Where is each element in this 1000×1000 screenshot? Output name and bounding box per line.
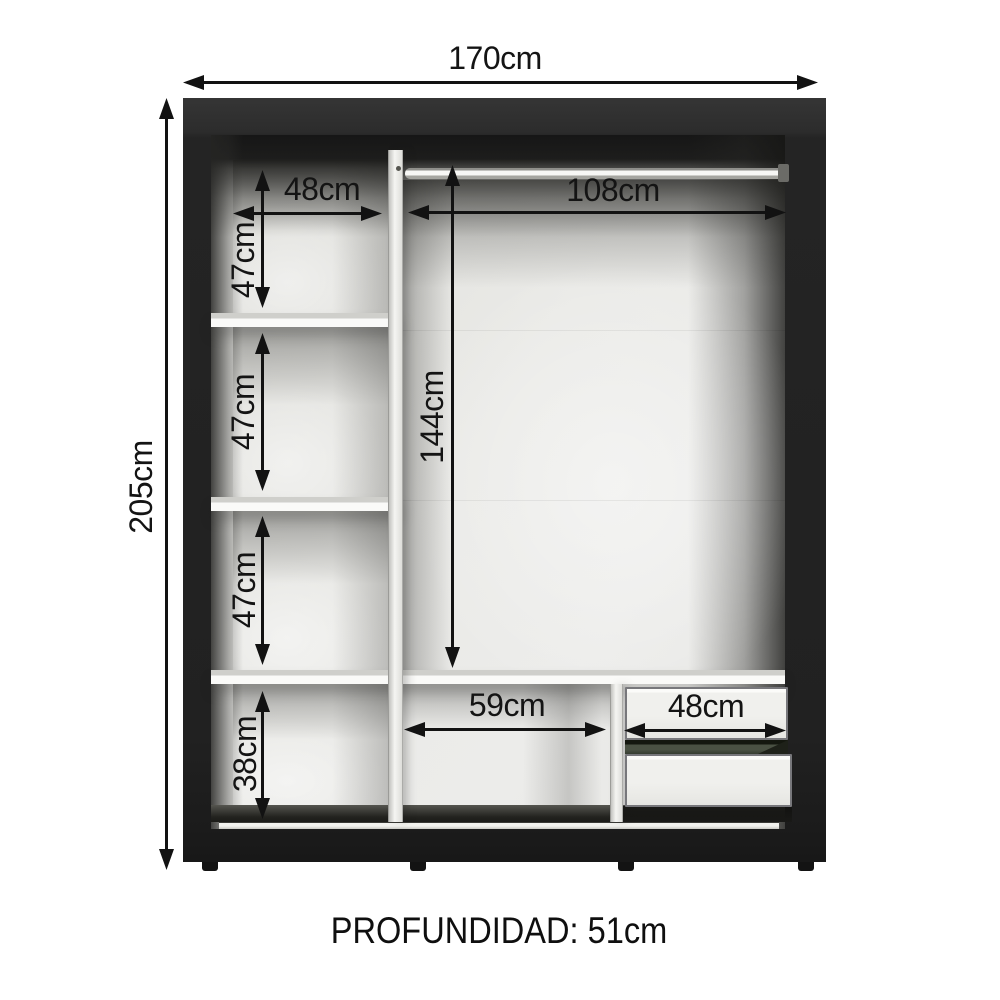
dim-overall-height-arrow xyxy=(159,98,174,870)
dim-hanging-height-label: 144cm xyxy=(416,370,448,464)
dim-overall-width-arrow xyxy=(183,75,818,90)
dim-upper-shelf-width-label: 48cm xyxy=(284,173,360,205)
plinth-foot xyxy=(410,862,426,871)
plinth-foot xyxy=(618,862,634,871)
shelf-2 xyxy=(211,497,403,511)
dim-shelf3-height-label: 47cm xyxy=(228,552,260,628)
dim-drawer-width-arrow xyxy=(624,723,786,738)
wardrobe-dimension-diagram: 170cm 205cm 48cm 108cm 47cm 47cm 47cm 38… xyxy=(0,0,1000,1000)
dim-shelf2-height-label: 47cm xyxy=(227,374,259,450)
rod-bracket xyxy=(778,164,789,182)
bottom-divider xyxy=(610,684,623,822)
rod-screw xyxy=(396,166,401,171)
drawer-shadow xyxy=(623,806,792,822)
plinth-foot xyxy=(202,862,218,871)
dim-bottom-open-width-arrow xyxy=(404,722,606,737)
hanging-section-shade xyxy=(403,180,785,670)
dim-overall-width-label: 170cm xyxy=(448,42,542,74)
dim-overall-height-label: 205cm xyxy=(125,440,157,534)
plinth-foot xyxy=(798,862,814,871)
dim-drawer-width-label: 48cm xyxy=(668,690,744,722)
vertical-divider xyxy=(388,150,403,822)
shelf-1 xyxy=(211,313,403,327)
dim-rod-width-label: 108cm xyxy=(566,174,660,206)
sliding-door-track xyxy=(219,822,779,829)
full-width-shelf xyxy=(211,670,785,684)
dim-bottom-left-height-label: 38cm xyxy=(229,716,261,792)
back-panel-seam xyxy=(403,500,785,501)
depth-caption: PROFUNDIDAD: 51cm xyxy=(331,912,668,949)
dim-bottom-open-width-label: 59cm xyxy=(469,689,545,721)
dim-shelf1-height-label: 47cm xyxy=(227,222,259,298)
drawer-bottom xyxy=(625,754,792,807)
back-panel-seam xyxy=(403,330,785,331)
